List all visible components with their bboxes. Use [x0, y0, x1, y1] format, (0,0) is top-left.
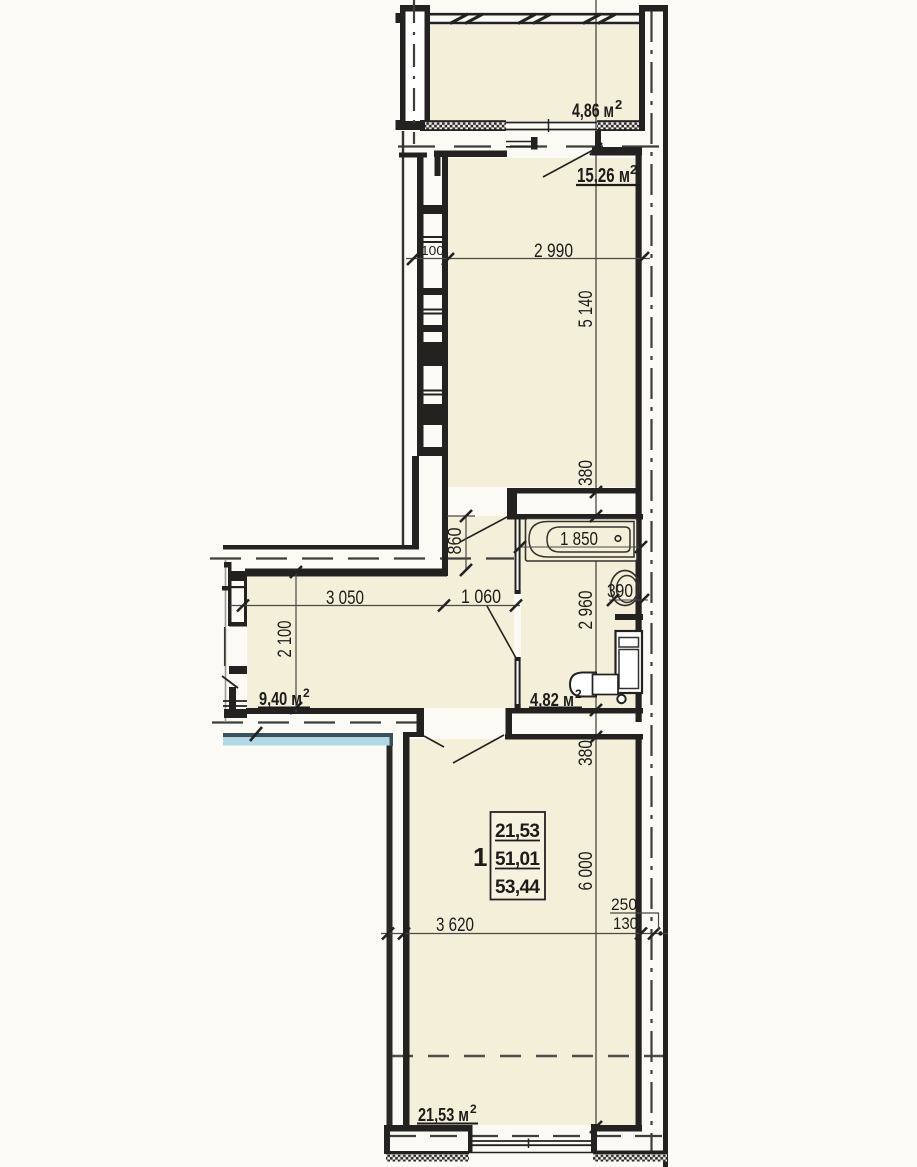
svg-text:2: 2: [575, 687, 582, 701]
svg-text:9,40 м: 9,40 м: [259, 689, 302, 709]
svg-text:21,53 м: 21,53 м: [418, 1105, 469, 1125]
svg-text:130: 130: [613, 914, 638, 933]
svg-text:2: 2: [303, 686, 310, 700]
svg-text:51,01: 51,01: [495, 849, 540, 870]
svg-text:15,26 м: 15,26 м: [577, 165, 630, 187]
svg-text:1 060: 1 060: [461, 587, 501, 608]
svg-text:380: 380: [576, 740, 597, 766]
svg-text:2 960: 2 960: [576, 591, 597, 630]
svg-text:380: 380: [576, 460, 597, 486]
svg-text:250: 250: [611, 895, 637, 914]
svg-text:4,86 м: 4,86 м: [572, 101, 614, 122]
svg-text:2 100: 2 100: [275, 621, 296, 658]
svg-text:6 000: 6 000: [576, 852, 597, 891]
svg-text:2: 2: [615, 97, 622, 112]
svg-text:1 850: 1 850: [560, 529, 598, 549]
svg-text:3 620: 3 620: [436, 915, 474, 936]
svg-text:5 140: 5 140: [576, 291, 597, 328]
svg-text:860: 860: [445, 528, 466, 555]
svg-text:21,53: 21,53: [495, 821, 540, 842]
svg-text:53,44: 53,44: [495, 877, 540, 898]
svg-text:2: 2: [470, 1102, 477, 1116]
svg-text:1: 1: [473, 842, 487, 872]
svg-text:390: 390: [607, 581, 633, 601]
svg-text:2: 2: [630, 162, 637, 177]
svg-text:100: 100: [421, 243, 444, 258]
